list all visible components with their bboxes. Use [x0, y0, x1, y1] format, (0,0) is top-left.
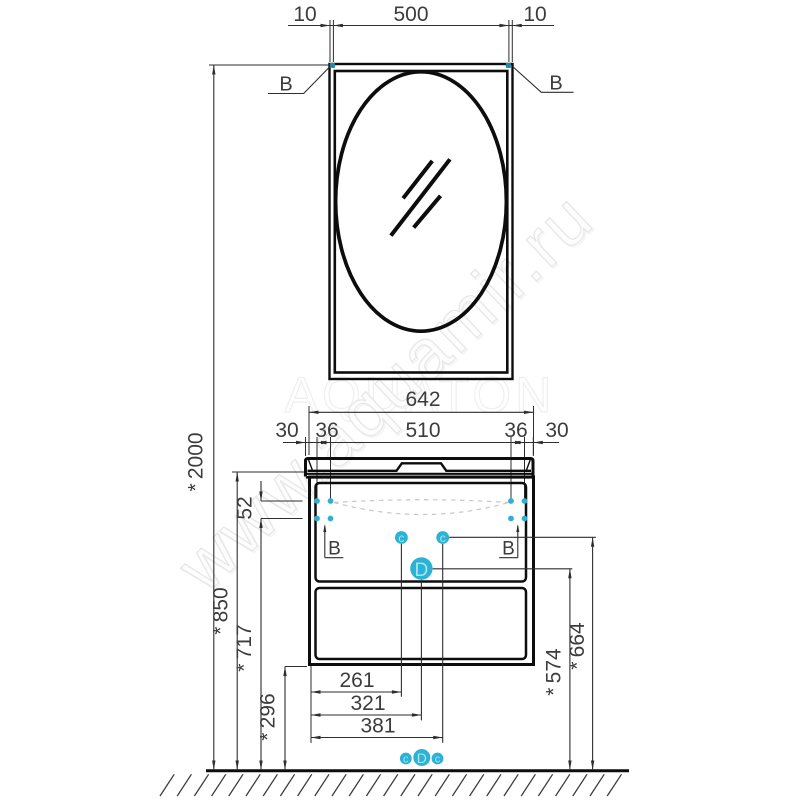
svg-text:36: 36 [504, 419, 527, 442]
svg-text:30: 30 [275, 419, 298, 442]
svg-text:* 296: * 296 [257, 693, 280, 740]
svg-text:B: B [279, 74, 292, 96]
svg-text:261: 261 [339, 669, 374, 692]
svg-text:* 574: * 574 [543, 648, 566, 696]
svg-text:36: 36 [315, 419, 338, 442]
svg-text:D: D [415, 560, 429, 581]
svg-text:* 2000: * 2000 [185, 432, 208, 491]
svg-text:321: 321 [350, 692, 385, 715]
svg-text:642: 642 [405, 388, 440, 411]
svg-text:10: 10 [293, 3, 316, 26]
svg-text:c: c [403, 754, 409, 766]
svg-text:52: 52 [234, 496, 257, 519]
svg-text:c: c [440, 531, 446, 545]
svg-text:B: B [328, 539, 341, 560]
svg-text:* 850: * 850 [210, 587, 233, 634]
svg-text:* 717: * 717 [233, 624, 256, 671]
svg-text:10: 10 [523, 3, 546, 26]
svg-text:381: 381 [360, 715, 395, 738]
svg-text:D: D [417, 750, 427, 766]
svg-text:* 664: * 664 [566, 622, 589, 670]
svg-text:30: 30 [545, 419, 568, 442]
svg-text:B: B [549, 73, 562, 95]
svg-text:c: c [435, 754, 441, 766]
svg-text:B: B [502, 539, 515, 560]
svg-text:500: 500 [393, 3, 428, 26]
svg-text:510: 510 [405, 419, 440, 442]
svg-text:c: c [398, 531, 404, 545]
